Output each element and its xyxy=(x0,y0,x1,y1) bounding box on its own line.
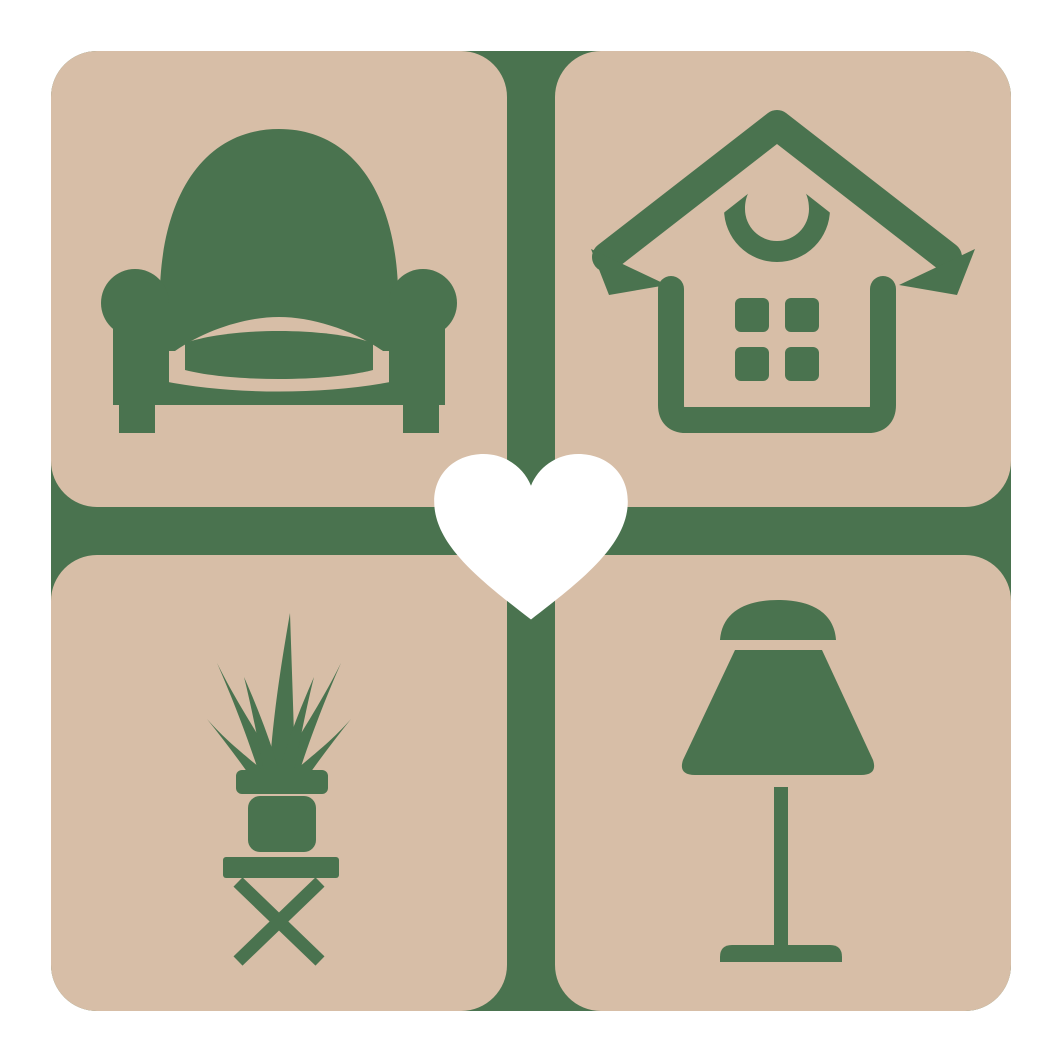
armchair-front-rail xyxy=(163,381,395,405)
house-icon xyxy=(555,51,1011,507)
armchair-left-arm xyxy=(113,303,169,405)
potted-plant-icon xyxy=(51,555,507,1011)
tile-plant xyxy=(51,555,507,1011)
lamp-cap xyxy=(720,600,836,640)
house-roof xyxy=(607,125,947,257)
house-window-pane-2 xyxy=(785,298,819,332)
table-lamp-icon xyxy=(555,555,1011,1011)
armchair-right-arm xyxy=(389,303,445,405)
house-window-pane-3 xyxy=(735,347,769,381)
tile-armchair xyxy=(51,51,507,507)
armchair-icon xyxy=(51,51,507,507)
armchair-seat-cushion xyxy=(185,331,373,379)
plant-pot-rim xyxy=(236,770,328,794)
house-window-pane-1 xyxy=(735,298,769,332)
lamp-base xyxy=(720,945,842,962)
plant-leaves xyxy=(207,613,351,785)
stool-x-legs xyxy=(238,882,320,961)
heart-icon xyxy=(423,447,639,623)
plant-pot-body xyxy=(248,796,316,852)
armchair-left-leg xyxy=(119,405,155,433)
armchair-right-leg xyxy=(403,405,439,433)
logo xyxy=(0,0,1063,1063)
house-walls xyxy=(671,289,883,420)
stool-top xyxy=(223,857,339,878)
lamp-shade xyxy=(682,650,874,775)
tile-lamp xyxy=(555,555,1011,1011)
house-window-pane-4 xyxy=(785,347,819,381)
armchair-back xyxy=(160,129,398,351)
lamp-stem xyxy=(774,787,788,945)
tile-house xyxy=(555,51,1011,507)
